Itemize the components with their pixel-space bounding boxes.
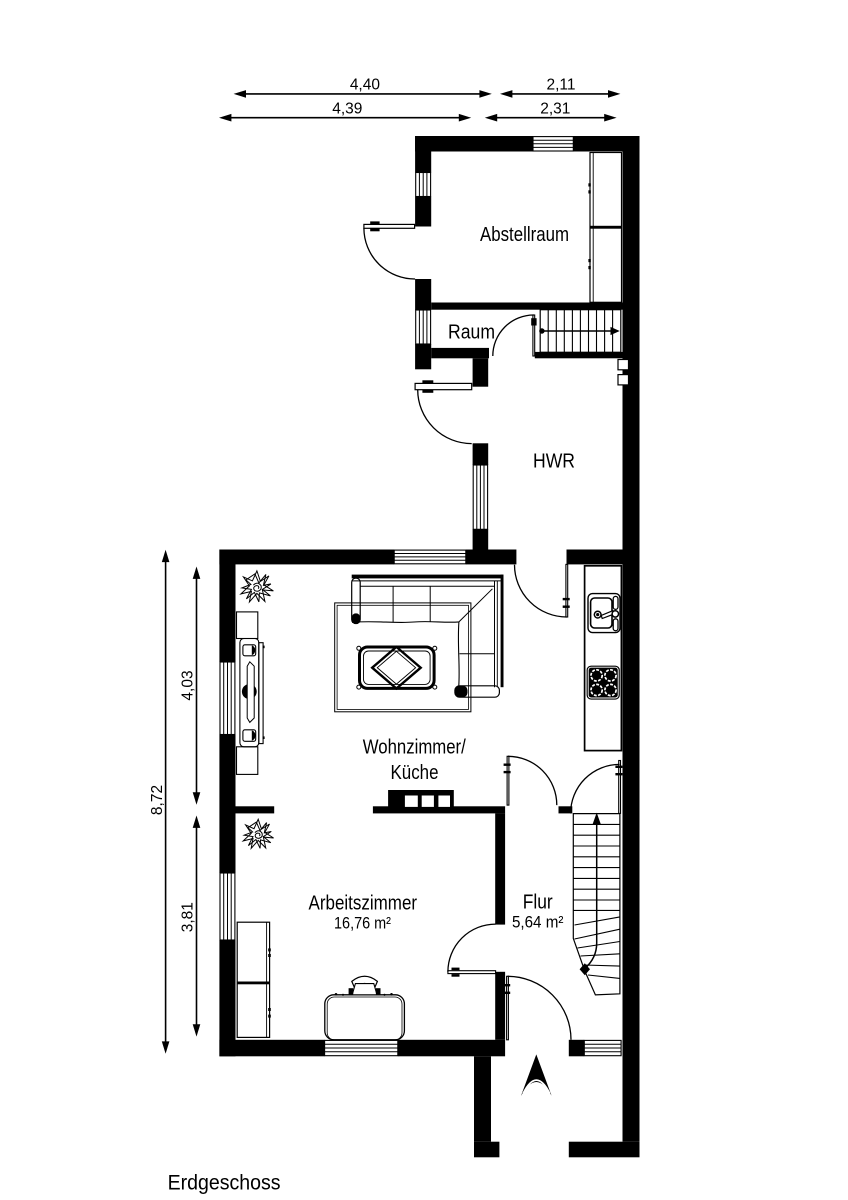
svg-text:Flur: Flur	[523, 892, 553, 914]
svg-text:Küche: Küche	[391, 762, 439, 784]
svg-text:8,72: 8,72	[149, 785, 166, 815]
svg-text:Raum: Raum	[448, 322, 495, 344]
svg-text:4,03: 4,03	[180, 670, 197, 700]
svg-text:3,81: 3,81	[180, 902, 197, 932]
svg-text:4,40: 4,40	[350, 77, 381, 94]
svg-text:16,76 m²: 16,76 m²	[334, 914, 391, 933]
svg-text:Wohnzimmer/: Wohnzimmer/	[363, 737, 466, 759]
svg-text:HWR: HWR	[533, 451, 575, 473]
svg-text:4,39: 4,39	[332, 100, 362, 117]
svg-text:5,64 m²: 5,64 m²	[512, 913, 564, 932]
svg-text:Abstellraum: Abstellraum	[480, 224, 569, 246]
svg-text:2,11: 2,11	[546, 77, 575, 94]
svg-text:Arbeitszimmer: Arbeitszimmer	[309, 893, 418, 915]
svg-text:Erdgeschoss: Erdgeschoss	[168, 1172, 281, 1195]
svg-text:2,31: 2,31	[540, 100, 570, 117]
